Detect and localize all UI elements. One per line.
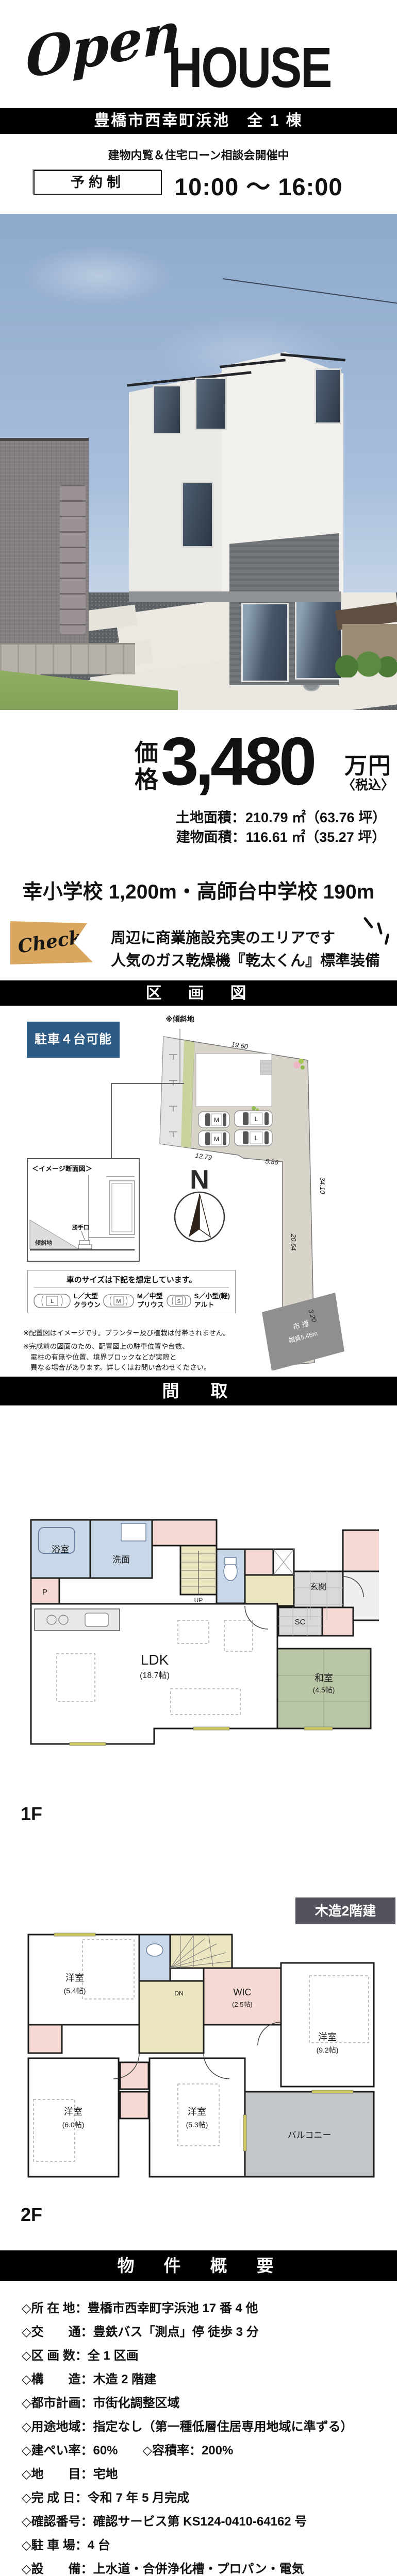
overview-label: ◇地 目：	[22, 2463, 93, 2486]
car-label: L	[255, 1134, 258, 1142]
plot-notes: ※配置図はイメージです。プランター及び植栽は付帯されません。 ※完成前の図面のた…	[23, 1328, 250, 1373]
car-label: M	[214, 1136, 219, 1143]
label-bath: 浴室	[52, 1545, 69, 1554]
flyer-page: Open HOUSE 豊橋市西幸町浜池 全 1 棟 建物内覧＆住宅ローン相談会開…	[0, 0, 397, 2576]
plot-note-line: ※完成前の図面のため、配置図上の駐車位置や台数、	[23, 1342, 250, 1352]
label-wash: 洗面	[112, 1555, 130, 1565]
plot-map-drawing: M L M L	[144, 1007, 397, 1370]
room-storage	[152, 1520, 217, 1546]
location-bar-text: 豊橋市西幸町浜池 全 1 棟	[94, 112, 303, 129]
price-amount: 3,480	[161, 727, 313, 795]
overview-value: 豊鉄バス「測点」停 徒歩 3 分	[93, 2325, 258, 2339]
overview-row: ◇所 在 地：豊橋市西幸町字浜池 17 番 4 他	[22, 2297, 393, 2320]
car-size-example: クラウン	[74, 1301, 101, 1310]
door-label: 勝手口	[72, 1224, 89, 1231]
overview-label: ◇区 画 数：	[22, 2344, 88, 2368]
car-size-item-s: S S／小型(軽) アルト	[166, 1291, 230, 1311]
overview-row: ◇交 通：豊鉄バス「測点」停 徒歩 3 分	[22, 2320, 393, 2344]
house-foundation	[129, 591, 341, 602]
open-hours: 10:00 ～ 16:00	[174, 167, 343, 202]
overview-value: 全 1 区画	[88, 2349, 139, 2363]
car-top-icon: S	[166, 1293, 192, 1309]
overview-row: ◇駐 車 場：4 台	[22, 2534, 393, 2557]
overview-value: 市街化調整区域	[93, 2396, 179, 2410]
car-size-type: L／大型	[74, 1292, 101, 1301]
room-2f-4	[150, 2058, 245, 2177]
leader-line-h	[111, 1083, 184, 1084]
logo-open-script: Open	[26, 0, 180, 91]
section-bar-plot-text: 区 画 図	[146, 984, 252, 1002]
cloud	[21, 245, 175, 307]
overview-row: ◇完 成 日：令和 7 年 5 月完成	[22, 2486, 393, 2510]
parking-capacity-badge: 駐車４台可能	[27, 1022, 120, 1058]
structure-badge-text: 木造2階建	[315, 1903, 376, 1919]
closet-2f-left	[28, 2025, 62, 2053]
label-dn: DN	[174, 1990, 183, 1997]
car-l2: L	[235, 1130, 272, 1146]
label-pantry: P	[42, 1588, 47, 1597]
price-label-char1: 価	[133, 740, 160, 767]
dim-bottom-left: 12.79	[195, 1151, 212, 1161]
window	[153, 385, 181, 434]
overview-row: ◇確認番号：確認サービス第 KS124-0410-64162 号	[22, 2510, 393, 2534]
school-distance-line: 幸小学校 1,200m・高師台中学校 190m	[0, 876, 397, 905]
reservation-label: 予約制	[71, 175, 125, 190]
floor-label-1f: 1F	[21, 1803, 42, 1825]
label-room3-size: (6.0帖)	[62, 2121, 85, 2129]
logo-house: HOUSE	[168, 35, 331, 100]
overview-value: 上水道・合併浄化槽・プロパン・電気	[93, 2562, 304, 2576]
label-room4: 洋室	[188, 2107, 206, 2117]
closet-2f-mid1	[120, 2062, 148, 2089]
plot-note-line: ※配置図はイメージです。プランター及び植栽は付帯されません。	[23, 1328, 250, 1338]
window	[181, 482, 213, 548]
overview-label: ◇都市計画：	[22, 2392, 93, 2415]
emphasis-stroke	[384, 934, 389, 945]
car-l1: L	[235, 1111, 272, 1127]
property-overview-list: ◇所 在 地：豊橋市西幸町字浜池 17 番 4 他 ◇交 通：豊鉄バス「測点」停…	[22, 2297, 393, 2576]
exterior-photo	[0, 214, 397, 710]
overview-value: 令和 7 年 5 月完成	[88, 2491, 189, 2505]
label-wic-size: (2.5帖)	[232, 2001, 253, 2008]
event-note: 建物内覧＆住宅ローン相談会開催中	[0, 146, 397, 163]
overview-value: 豊橋市西幸町字浜池 17 番 4 他	[88, 2301, 258, 2315]
section-bar-overview: 物 件 概 要	[0, 2250, 397, 2281]
label-room1-size: (5.4帖)	[64, 1987, 86, 1995]
label-room3: 洋室	[64, 2107, 82, 2117]
dim-right: 34.10	[319, 1177, 326, 1194]
overview-label: ◇構 造：	[22, 2368, 93, 2392]
plot-note-line: 異なる場合があります。詳しくはお問い合わせください。	[23, 1363, 250, 1373]
car-size-box: 車のサイズは下記を想定しています。 L L／大型 クラウン	[27, 1270, 236, 1313]
section-bar-plot: 区 画 図	[0, 980, 397, 1006]
balcony-rails	[60, 485, 86, 634]
window	[195, 378, 227, 430]
room-2f-wash	[139, 1935, 170, 1981]
road-polygon	[262, 1293, 344, 1370]
overview-label: ◇所 在 地：	[22, 2297, 88, 2320]
room-pink-entry	[343, 1530, 379, 1571]
overview-label: ◇交 通：	[22, 2320, 93, 2344]
label-genkan: 玄関	[310, 1582, 326, 1591]
label-room4-size: (5.3帖)	[186, 2121, 208, 2129]
closet-2f-mid2	[120, 2092, 148, 2119]
label-wic: WIC	[234, 1987, 252, 1997]
overview-value: 確認サービス第 KS124-0410-64162 号	[93, 2515, 307, 2529]
overview-value: 60% ◇容積率：200%	[93, 2444, 233, 2458]
car-m2: M	[198, 1131, 229, 1147]
cross-section-box: ＜イメージ断面図＞ 勝手口 傾斜地	[27, 1158, 140, 1262]
overview-label: ◇完 成 日：	[22, 2486, 88, 2510]
rear-fence	[0, 643, 135, 674]
price-tax-note: 〈税込〉	[342, 775, 394, 793]
overview-label: ◇駐 車 場：	[22, 2534, 88, 2557]
dim-bottom: 5.86	[265, 1157, 279, 1166]
overview-row: ◇構 造：木造 2 階建	[22, 2368, 393, 2392]
section-bar-overview-text: 物 件 概 要	[118, 2256, 280, 2275]
check-ribbon-label: Check!	[16, 925, 91, 957]
car-size-item-l: L L／大型 クラウン	[33, 1291, 101, 1311]
dim-drive: 20.64	[290, 1233, 297, 1251]
car-size-item-m: M M／中型 プリウス	[103, 1291, 164, 1311]
emphasis-stroke	[377, 922, 383, 935]
price-label-char2: 格	[133, 767, 160, 793]
label-balcony: バルコニー	[288, 2130, 332, 2140]
check-ribbon: Check!	[10, 921, 93, 964]
window-sliding	[241, 603, 289, 682]
label-room1: 洋室	[65, 1973, 84, 1983]
overview-row: ◇設 備：上水道・合併浄化槽・プロパン・電気	[22, 2557, 393, 2576]
car-size-type: S／小型(軽)	[194, 1292, 230, 1301]
floorplan-2f: 洋室 (5.4帖) DN WIC (2.5帖) 洋室 (9.2帖) 洋室 (6.…	[23, 1929, 379, 2182]
section-bar-floorplan: 間 取	[0, 1377, 397, 1405]
car-size-badge: M	[116, 1298, 121, 1304]
car-label: L	[255, 1115, 258, 1123]
compass: N	[175, 1165, 224, 1242]
label-room2: 洋室	[318, 2032, 337, 2042]
price-label: 価 格	[133, 740, 160, 793]
building-area-line: 建物面積：116.61 ㎡（35.27 坪）	[165, 826, 397, 846]
label-ldk-size: (18.7帖)	[140, 1671, 170, 1680]
structure-badge: 木造2階建	[295, 1897, 395, 1924]
overview-label: ◇確認番号：	[22, 2510, 93, 2534]
bushes	[334, 651, 397, 677]
closet	[245, 1549, 273, 1575]
car-size-badge: S	[177, 1299, 180, 1304]
reservation-box: 予約制	[34, 170, 162, 195]
overview-row: ◇地 目：宅地	[22, 2463, 393, 2486]
overview-value: 宅地	[93, 2467, 118, 2481]
label-washitsu: 和室	[315, 1673, 333, 1683]
label-sc: SC	[295, 1618, 306, 1626]
land-area-line: 土地面積：210.79 ㎡（63.76 坪）	[165, 806, 397, 826]
overview-label: ◇用途地域：	[22, 2415, 93, 2439]
overview-row: ◇都市計画：市街化調整区域	[22, 2392, 393, 2415]
leader-line-v	[111, 1083, 112, 1158]
cross-section-drawing: 勝手口 傾斜地	[28, 1159, 137, 1259]
car-size-title: 車のサイズは下記を想定しています。	[28, 1274, 235, 1285]
room-2f-2	[281, 1963, 374, 2087]
label-washitsu-size: (4.5帖)	[313, 1686, 335, 1694]
emphasis-stroke	[363, 917, 374, 929]
car-size-example: アルト	[194, 1301, 230, 1310]
compass-n: N	[190, 1165, 209, 1195]
overview-row: ◇用途地域：指定なし（第一種低層住居専用地域に準ずる）	[22, 2415, 393, 2439]
power-wire	[223, 278, 397, 305]
check-line2: 人気のガス乾燥機『乾太くん』標準装備	[111, 948, 380, 970]
location-bar: 豊橋市西幸町浜池 全 1 棟	[0, 108, 397, 134]
floor-label-2f: 2F	[21, 2204, 42, 2226]
room-2f-3	[28, 2058, 119, 2177]
slope-label: 傾斜地	[35, 1239, 52, 1246]
overview-row: ◇建ぺい率：60% ◇容積率：200%	[22, 2439, 393, 2463]
overview-value: 4 台	[88, 2538, 110, 2552]
slope-note: ※傾斜地	[166, 1015, 194, 1023]
floorplan-1f: 浴室 洗面 P UP 玄関 SC LDK (18.7帖) 和室 (4.5帖)	[23, 1512, 379, 1754]
section-bar-floorplan-text: 間 取	[162, 1381, 235, 1400]
plot-note-line: 電柱の有無や位置、境界ブロックなどが実際と	[23, 1352, 250, 1363]
car-size-badge: L	[51, 1298, 54, 1304]
car-top-icon: M	[103, 1292, 135, 1310]
label-up: UP	[194, 1597, 203, 1604]
car-size-type: M／中型	[137, 1292, 164, 1301]
hall-1f	[245, 1575, 294, 1606]
label-room2-size: (9.2帖)	[317, 2046, 339, 2054]
overview-label: ◇建ぺい率：	[22, 2439, 93, 2463]
car-label: M	[214, 1116, 219, 1124]
neighbor-building-left	[0, 438, 89, 648]
overview-value: 指定なし（第一種低層住居専用地域に準ずる）	[93, 2420, 353, 2434]
hall-2f	[139, 1981, 204, 2053]
label-ldk: LDK	[141, 1652, 169, 1668]
shrub	[252, 1106, 256, 1110]
overview-row: ◇区 画 数：全 1 区画	[22, 2344, 393, 2368]
parking-capacity-text: 駐車４台可能	[35, 1032, 112, 1046]
car-top-icon: L	[33, 1291, 71, 1311]
overview-value: 木造 2 階建	[93, 2372, 156, 2386]
car-size-example: プリウス	[137, 1301, 164, 1310]
window	[315, 368, 341, 424]
check-line1: 周辺に商業施設充実のエリアです	[111, 926, 335, 947]
car-m1: M	[198, 1112, 229, 1128]
overview-label: ◇設 備：	[22, 2557, 93, 2576]
